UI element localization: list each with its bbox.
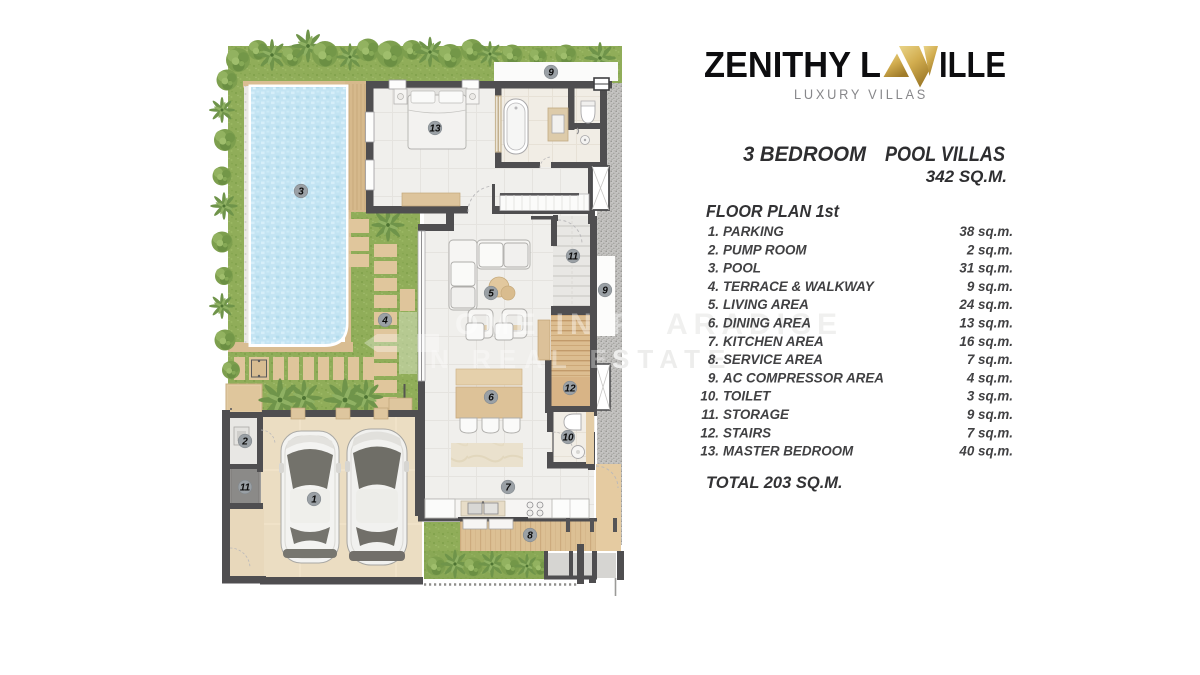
- svg-text:16 sq.m.: 16 sq.m.: [959, 334, 1013, 349]
- svg-text:4.: 4.: [707, 279, 719, 294]
- svg-text:11: 11: [240, 483, 251, 494]
- svg-text:5.: 5.: [708, 297, 719, 312]
- svg-text:24 sq.m.: 24 sq.m.: [958, 297, 1013, 312]
- svg-text:7 sq.m.: 7 sq.m.: [967, 352, 1013, 367]
- svg-text:AC COMPRESSOR AREA: AC COMPRESSOR AREA: [722, 370, 884, 385]
- svg-text:11: 11: [568, 252, 579, 263]
- svg-text:LUXURY VILLAS: LUXURY VILLAS: [794, 86, 928, 102]
- svg-text:6.: 6.: [708, 316, 719, 331]
- svg-text:10.: 10.: [700, 389, 719, 404]
- svg-text:OME IN P: OME IN P: [455, 308, 638, 341]
- svg-text:6: 6: [488, 393, 494, 404]
- svg-text:4 sq.m.: 4 sq.m.: [966, 370, 1013, 385]
- svg-text:2 sq.m.: 2 sq.m.: [966, 242, 1013, 257]
- svg-text:31 sq.m.: 31 sq.m.: [959, 261, 1013, 276]
- svg-text:3: 3: [298, 187, 304, 198]
- svg-text:PARKING: PARKING: [723, 224, 784, 239]
- svg-text:13: 13: [429, 124, 441, 135]
- svg-text:3.: 3.: [708, 261, 719, 276]
- svg-text:TERRACE & WALKWAY: TERRACE & WALKWAY: [723, 279, 875, 294]
- svg-text:10: 10: [562, 433, 574, 444]
- svg-text:FLOOR PLAN 1st: FLOOR PLAN 1st: [706, 201, 840, 221]
- svg-text:STORAGE: STORAGE: [723, 407, 790, 422]
- svg-text:40 sq.m.: 40 sq.m.: [958, 444, 1013, 459]
- svg-text:8: 8: [527, 531, 533, 542]
- svg-text:2.: 2.: [707, 242, 719, 257]
- svg-text:5: 5: [488, 289, 494, 300]
- svg-text:13 sq.m.: 13 sq.m.: [959, 316, 1013, 331]
- svg-text:LIVING AREA: LIVING AREA: [723, 297, 809, 312]
- svg-text:KITCHEN AREA: KITCHEN AREA: [723, 334, 824, 349]
- svg-text:342 SQ.M.: 342 SQ.M.: [926, 167, 1007, 186]
- svg-text:POOL: POOL: [723, 261, 761, 276]
- svg-text:ZENITHY L: ZENITHY L: [704, 44, 881, 85]
- svg-text:STAIRS: STAIRS: [723, 425, 771, 440]
- svg-text:9: 9: [602, 286, 608, 297]
- svg-text:TOTAL 203 SQ.M.: TOTAL 203 SQ.M.: [706, 474, 843, 492]
- svg-text:3 sq.m.: 3 sq.m.: [967, 389, 1013, 404]
- svg-text:MASTER BEDROOM: MASTER BEDROOM: [723, 444, 854, 459]
- svg-text:8.: 8.: [708, 352, 719, 367]
- svg-text:2: 2: [241, 437, 248, 448]
- svg-text:12: 12: [564, 384, 576, 395]
- svg-text:ILLE: ILLE: [939, 44, 1006, 85]
- svg-text:12.: 12.: [700, 425, 719, 440]
- svg-text:3 BEDROOM: 3 BEDROOM: [743, 143, 866, 166]
- svg-text:SERVICE AREA: SERVICE AREA: [723, 352, 823, 367]
- svg-text:POOL VILLAS: POOL VILLAS: [885, 143, 1005, 166]
- svg-text:4: 4: [381, 316, 388, 327]
- svg-text:9 sq.m.: 9 sq.m.: [967, 407, 1013, 422]
- svg-text:DINING AREA: DINING AREA: [723, 316, 811, 331]
- svg-text:TOILET: TOILET: [723, 389, 772, 404]
- svg-text:1.: 1.: [708, 224, 719, 239]
- svg-text:11.: 11.: [701, 407, 719, 422]
- svg-text:9.: 9.: [708, 370, 719, 385]
- svg-text:PUMP ROOM: PUMP ROOM: [723, 242, 807, 257]
- svg-text:38 sq.m.: 38 sq.m.: [959, 224, 1013, 239]
- svg-text:9 sq.m.: 9 sq.m.: [967, 279, 1013, 294]
- svg-text:1: 1: [311, 495, 317, 506]
- svg-text:13.: 13.: [700, 444, 719, 459]
- svg-text:7.: 7.: [708, 334, 719, 349]
- svg-text:7: 7: [505, 483, 511, 494]
- svg-text:7 sq.m.: 7 sq.m.: [967, 425, 1013, 440]
- svg-text:9: 9: [548, 68, 554, 79]
